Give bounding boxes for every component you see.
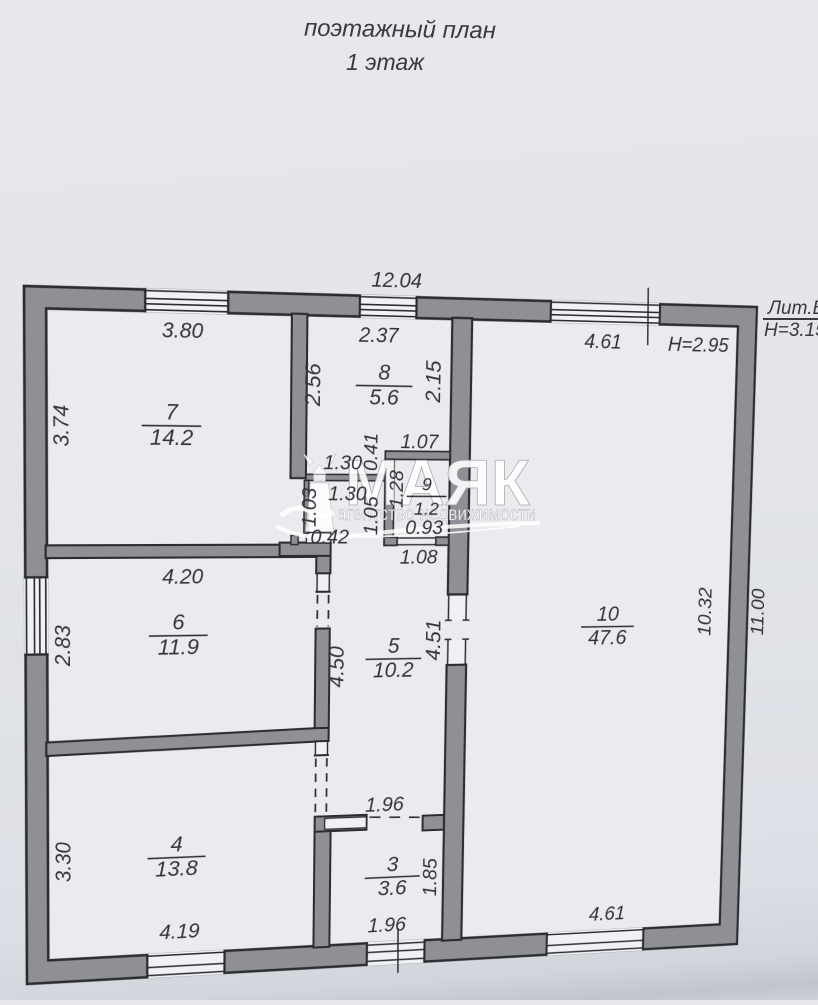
svg-text:3.6: 3.6 bbox=[378, 876, 407, 900]
svg-text:0.41: 0.41 bbox=[361, 433, 382, 471]
svg-text:4.51: 4.51 bbox=[421, 619, 445, 660]
svg-text:3.74: 3.74 bbox=[49, 404, 74, 446]
svg-text:1.28: 1.28 bbox=[386, 470, 407, 508]
svg-text:7: 7 bbox=[165, 399, 178, 424]
svg-text:1.96: 1.96 bbox=[368, 913, 407, 937]
svg-text:5.6: 5.6 bbox=[369, 385, 399, 410]
svg-text:4.61: 4.61 bbox=[584, 330, 622, 354]
svg-text:9: 9 bbox=[422, 475, 432, 495]
svg-text:11.9: 11.9 bbox=[158, 634, 199, 659]
svg-text:6: 6 bbox=[172, 610, 184, 634]
svg-text:13.8: 13.8 bbox=[155, 856, 197, 882]
svg-text:0.42: 0.42 bbox=[310, 525, 349, 548]
svg-text:2.37: 2.37 bbox=[358, 323, 400, 347]
svg-text:12.04: 12.04 bbox=[371, 268, 422, 293]
svg-text:4.50: 4.50 bbox=[324, 646, 348, 688]
svg-text:1.85: 1.85 bbox=[419, 857, 441, 897]
svg-text:3: 3 bbox=[387, 852, 399, 876]
svg-text:2.83: 2.83 bbox=[50, 625, 74, 668]
svg-text:4.61: 4.61 bbox=[589, 902, 626, 925]
svg-text:8: 8 bbox=[378, 360, 390, 385]
svg-text:10.2: 10.2 bbox=[373, 658, 414, 682]
svg-text:3.80: 3.80 bbox=[162, 318, 204, 343]
svg-text:10.32: 10.32 bbox=[694, 587, 716, 636]
svg-text:11.00: 11.00 bbox=[747, 588, 769, 636]
svg-text:1.08: 1.08 bbox=[400, 545, 438, 568]
svg-text:4.20: 4.20 bbox=[162, 565, 204, 589]
svg-text:Н=2.95: Н=2.95 bbox=[668, 333, 730, 357]
svg-text:2.56: 2.56 bbox=[300, 363, 324, 407]
svg-text:1.2: 1.2 bbox=[414, 499, 439, 519]
svg-text:10: 10 bbox=[597, 602, 620, 625]
svg-text:47.6: 47.6 bbox=[588, 626, 627, 650]
svg-text:1.30: 1.30 bbox=[323, 451, 362, 475]
svg-text:1.07: 1.07 bbox=[400, 430, 439, 453]
svg-text:4: 4 bbox=[171, 832, 183, 856]
svg-text:2.15: 2.15 bbox=[421, 359, 445, 403]
svg-text:5: 5 bbox=[388, 634, 401, 658]
svg-text:4.19: 4.19 bbox=[159, 919, 199, 944]
svg-text:1.96: 1.96 bbox=[365, 793, 404, 817]
svg-text:1.05: 1.05 bbox=[359, 495, 382, 535]
svg-text:1.03: 1.03 bbox=[297, 488, 320, 527]
svg-text:14.2: 14.2 bbox=[150, 425, 193, 450]
svg-text:3.30: 3.30 bbox=[51, 841, 75, 883]
